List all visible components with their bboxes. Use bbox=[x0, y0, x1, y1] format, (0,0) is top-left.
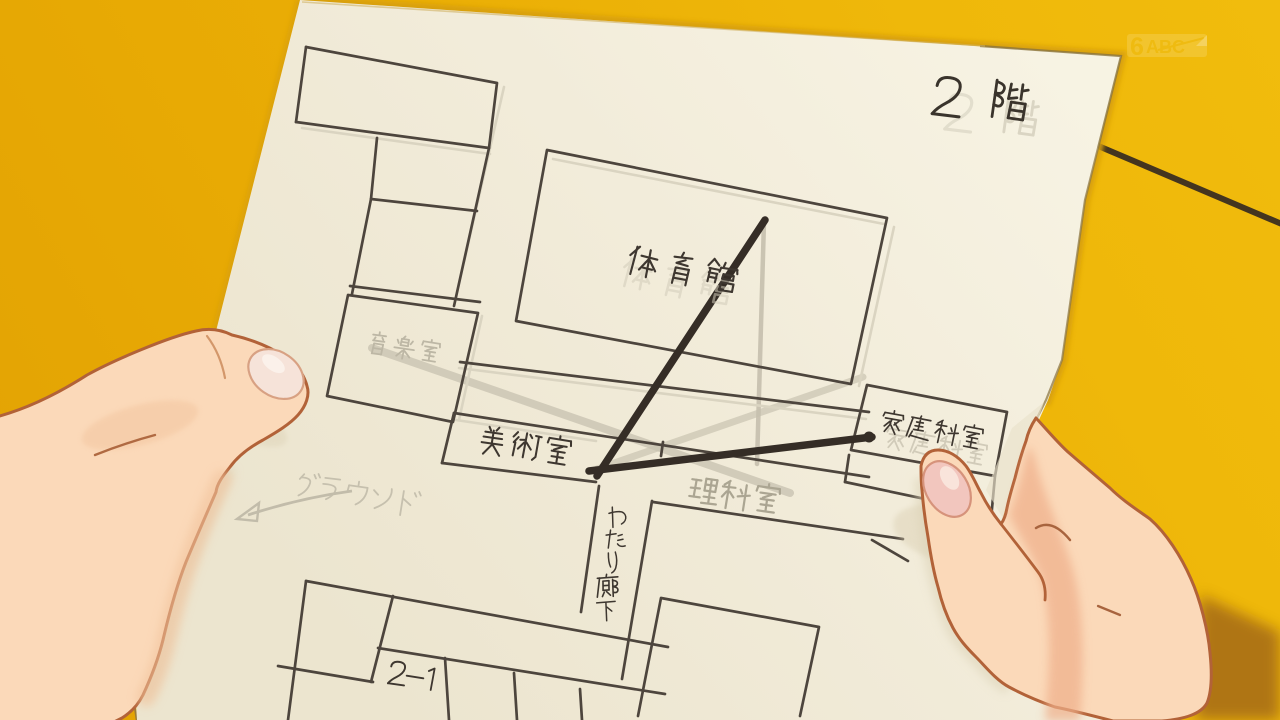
svg-text:6: 6 bbox=[1130, 33, 1144, 61]
svg-text:ABC: ABC bbox=[1146, 37, 1185, 57]
